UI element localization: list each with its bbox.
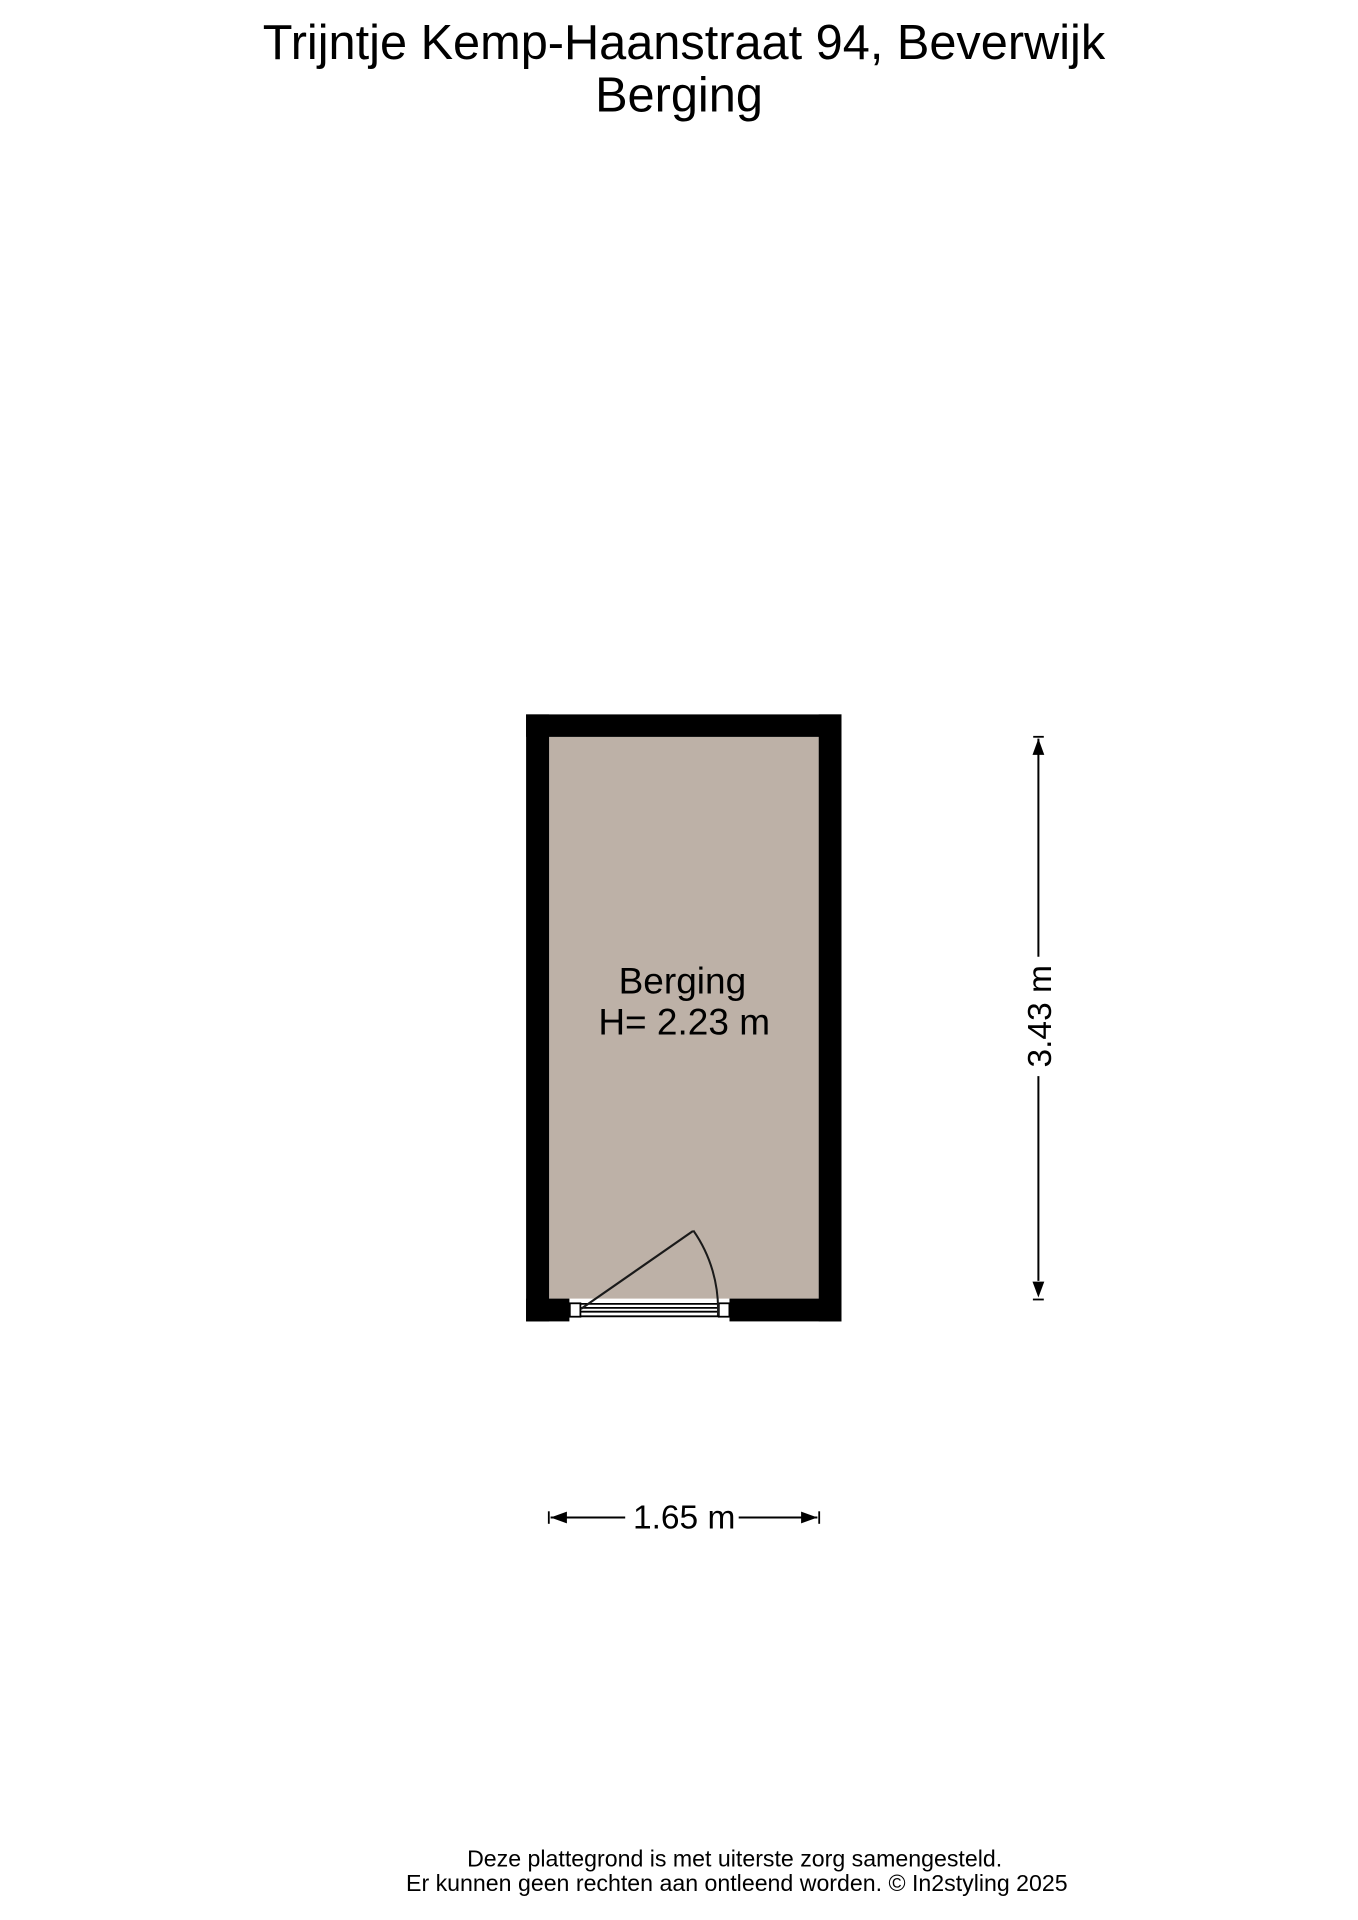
svg-text:Trijntje Kemp-Haanstraat 94, B: Trijntje Kemp-Haanstraat 94, Beverwijk bbox=[263, 16, 1106, 70]
svg-text:1.65 m: 1.65 m bbox=[633, 1500, 735, 1537]
svg-text:Berging: Berging bbox=[619, 960, 747, 1001]
svg-text:3.43 m: 3.43 m bbox=[1022, 965, 1059, 1067]
svg-text:Deze plattegrond is met uiters: Deze plattegrond is met uiterste zorg sa… bbox=[467, 1846, 1002, 1872]
svg-text:H= 2.23 m: H= 2.23 m bbox=[598, 1002, 770, 1043]
svg-text:Er kunnen geen rechten aan ont: Er kunnen geen rechten aan ontleend word… bbox=[406, 1870, 1068, 1896]
svg-text:Berging: Berging bbox=[595, 69, 763, 123]
